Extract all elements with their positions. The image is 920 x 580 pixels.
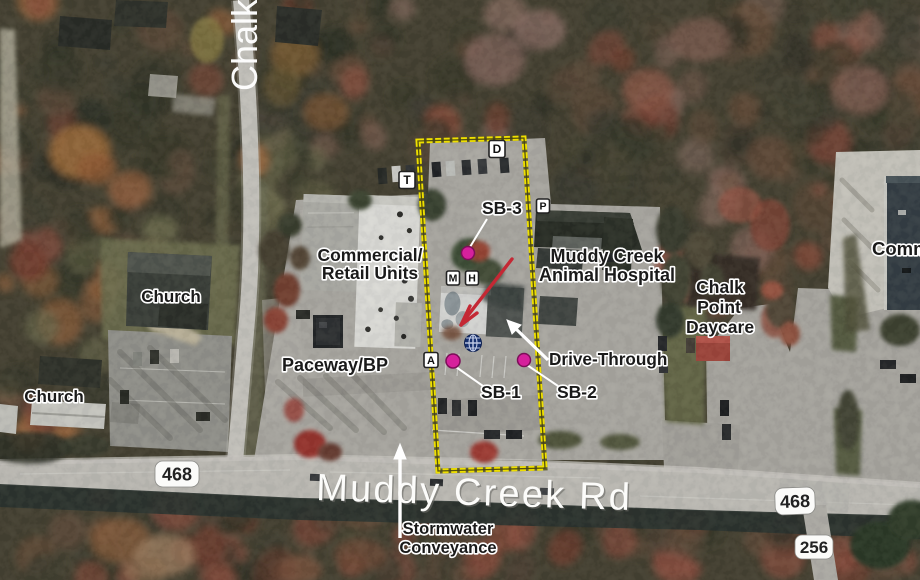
svg-text:P: P bbox=[539, 201, 546, 213]
svg-text:Retail Units: Retail Units bbox=[322, 263, 419, 283]
svg-text:256: 256 bbox=[800, 538, 828, 557]
svg-text:D: D bbox=[493, 142, 502, 156]
svg-text:Church: Church bbox=[24, 387, 84, 406]
svg-text:Animal Hospital: Animal Hospital bbox=[539, 265, 675, 285]
svg-text:468: 468 bbox=[780, 491, 811, 512]
svg-text:Stormwater: Stormwater bbox=[403, 520, 494, 538]
svg-text:H: H bbox=[468, 273, 476, 285]
svg-text:Comm: Comm bbox=[872, 238, 920, 259]
svg-text:SB-3: SB-3 bbox=[482, 198, 522, 218]
svg-text:SB-1: SB-1 bbox=[481, 382, 521, 402]
svg-text:Conveyance: Conveyance bbox=[399, 539, 496, 557]
svg-text:SB-2: SB-2 bbox=[557, 382, 597, 402]
svg-text:Chalk: Chalk bbox=[696, 277, 744, 297]
svg-text:T: T bbox=[403, 173, 411, 187]
svg-text:Commercial/: Commercial/ bbox=[317, 245, 422, 265]
svg-text:Muddy Creek: Muddy Creek bbox=[550, 246, 664, 266]
svg-text:Church: Church bbox=[141, 287, 201, 306]
svg-text:Point: Point bbox=[697, 297, 741, 317]
svg-text:M: M bbox=[449, 273, 458, 285]
svg-text:A: A bbox=[427, 355, 435, 367]
svg-text:Drive-Through: Drive-Through bbox=[549, 349, 667, 369]
svg-text:Chalk: Chalk bbox=[224, 0, 265, 91]
svg-text:Daycare: Daycare bbox=[686, 317, 754, 337]
svg-text:468: 468 bbox=[162, 464, 192, 484]
svg-text:Paceway/BP: Paceway/BP bbox=[282, 355, 388, 375]
